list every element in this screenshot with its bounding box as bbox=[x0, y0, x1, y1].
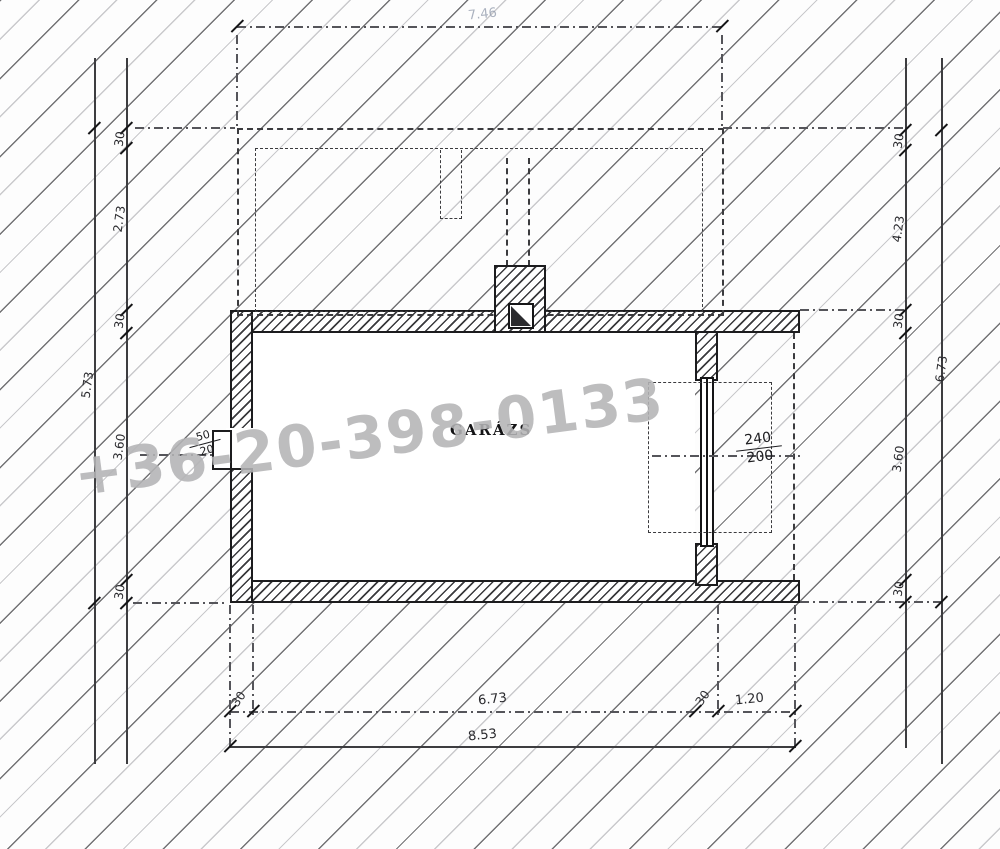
extension-line bbox=[721, 35, 723, 128]
extension-line bbox=[800, 601, 941, 603]
dim-bottom-seg2: 6.73 bbox=[477, 691, 507, 709]
garage-left-wall-upper bbox=[230, 310, 253, 430]
dim-left-seg1: 30 bbox=[112, 130, 128, 147]
extension-line bbox=[236, 35, 238, 128]
dim-line-top bbox=[237, 26, 723, 28]
dim-right-seg1: 30 bbox=[891, 132, 907, 149]
dim-line-left-outer bbox=[94, 58, 96, 764]
extension-line bbox=[800, 309, 905, 311]
extension-line bbox=[133, 602, 228, 604]
dim-right-seg5: 30 bbox=[891, 580, 907, 597]
extension-line bbox=[229, 605, 231, 748]
dim-left-seg5: 30 bbox=[112, 583, 128, 600]
dim-top-total: 7.46 bbox=[467, 6, 497, 24]
dim-right-seg3: 30 bbox=[891, 312, 907, 329]
extension-line bbox=[135, 127, 235, 129]
extension-line bbox=[252, 605, 254, 715]
flue-projection-line-right bbox=[528, 158, 530, 266]
flue-projection-line-left bbox=[506, 158, 508, 266]
dim-line-bottom-total bbox=[230, 746, 796, 748]
dim-line-right-inner bbox=[905, 58, 907, 748]
extension-line bbox=[717, 605, 719, 715]
upper-structure-inner-dashed bbox=[255, 148, 703, 312]
extension-line bbox=[723, 127, 905, 129]
door-jamb-lower bbox=[695, 543, 718, 586]
extension-line bbox=[794, 605, 796, 748]
dim-bottom-seg4: 1.20 bbox=[734, 691, 764, 709]
door-dimension: 240 200 bbox=[734, 429, 784, 468]
flue-triangle-icon bbox=[511, 306, 531, 326]
dim-left-seg3: 30 bbox=[112, 312, 128, 329]
dim-line-bottom-segments bbox=[230, 711, 796, 713]
floor-plan-sheet: GARÁZS 50 20 240 200 7.46 30 2.73 30 3.6… bbox=[0, 0, 1000, 849]
dim-line-left-inner bbox=[126, 58, 128, 764]
upper-notch-dashed bbox=[440, 150, 462, 219]
flue-square bbox=[508, 303, 534, 329]
dim-line-right-outer bbox=[941, 58, 943, 764]
door-jamb-upper bbox=[695, 331, 718, 381]
dim-bottom-total: 8.53 bbox=[467, 727, 497, 745]
